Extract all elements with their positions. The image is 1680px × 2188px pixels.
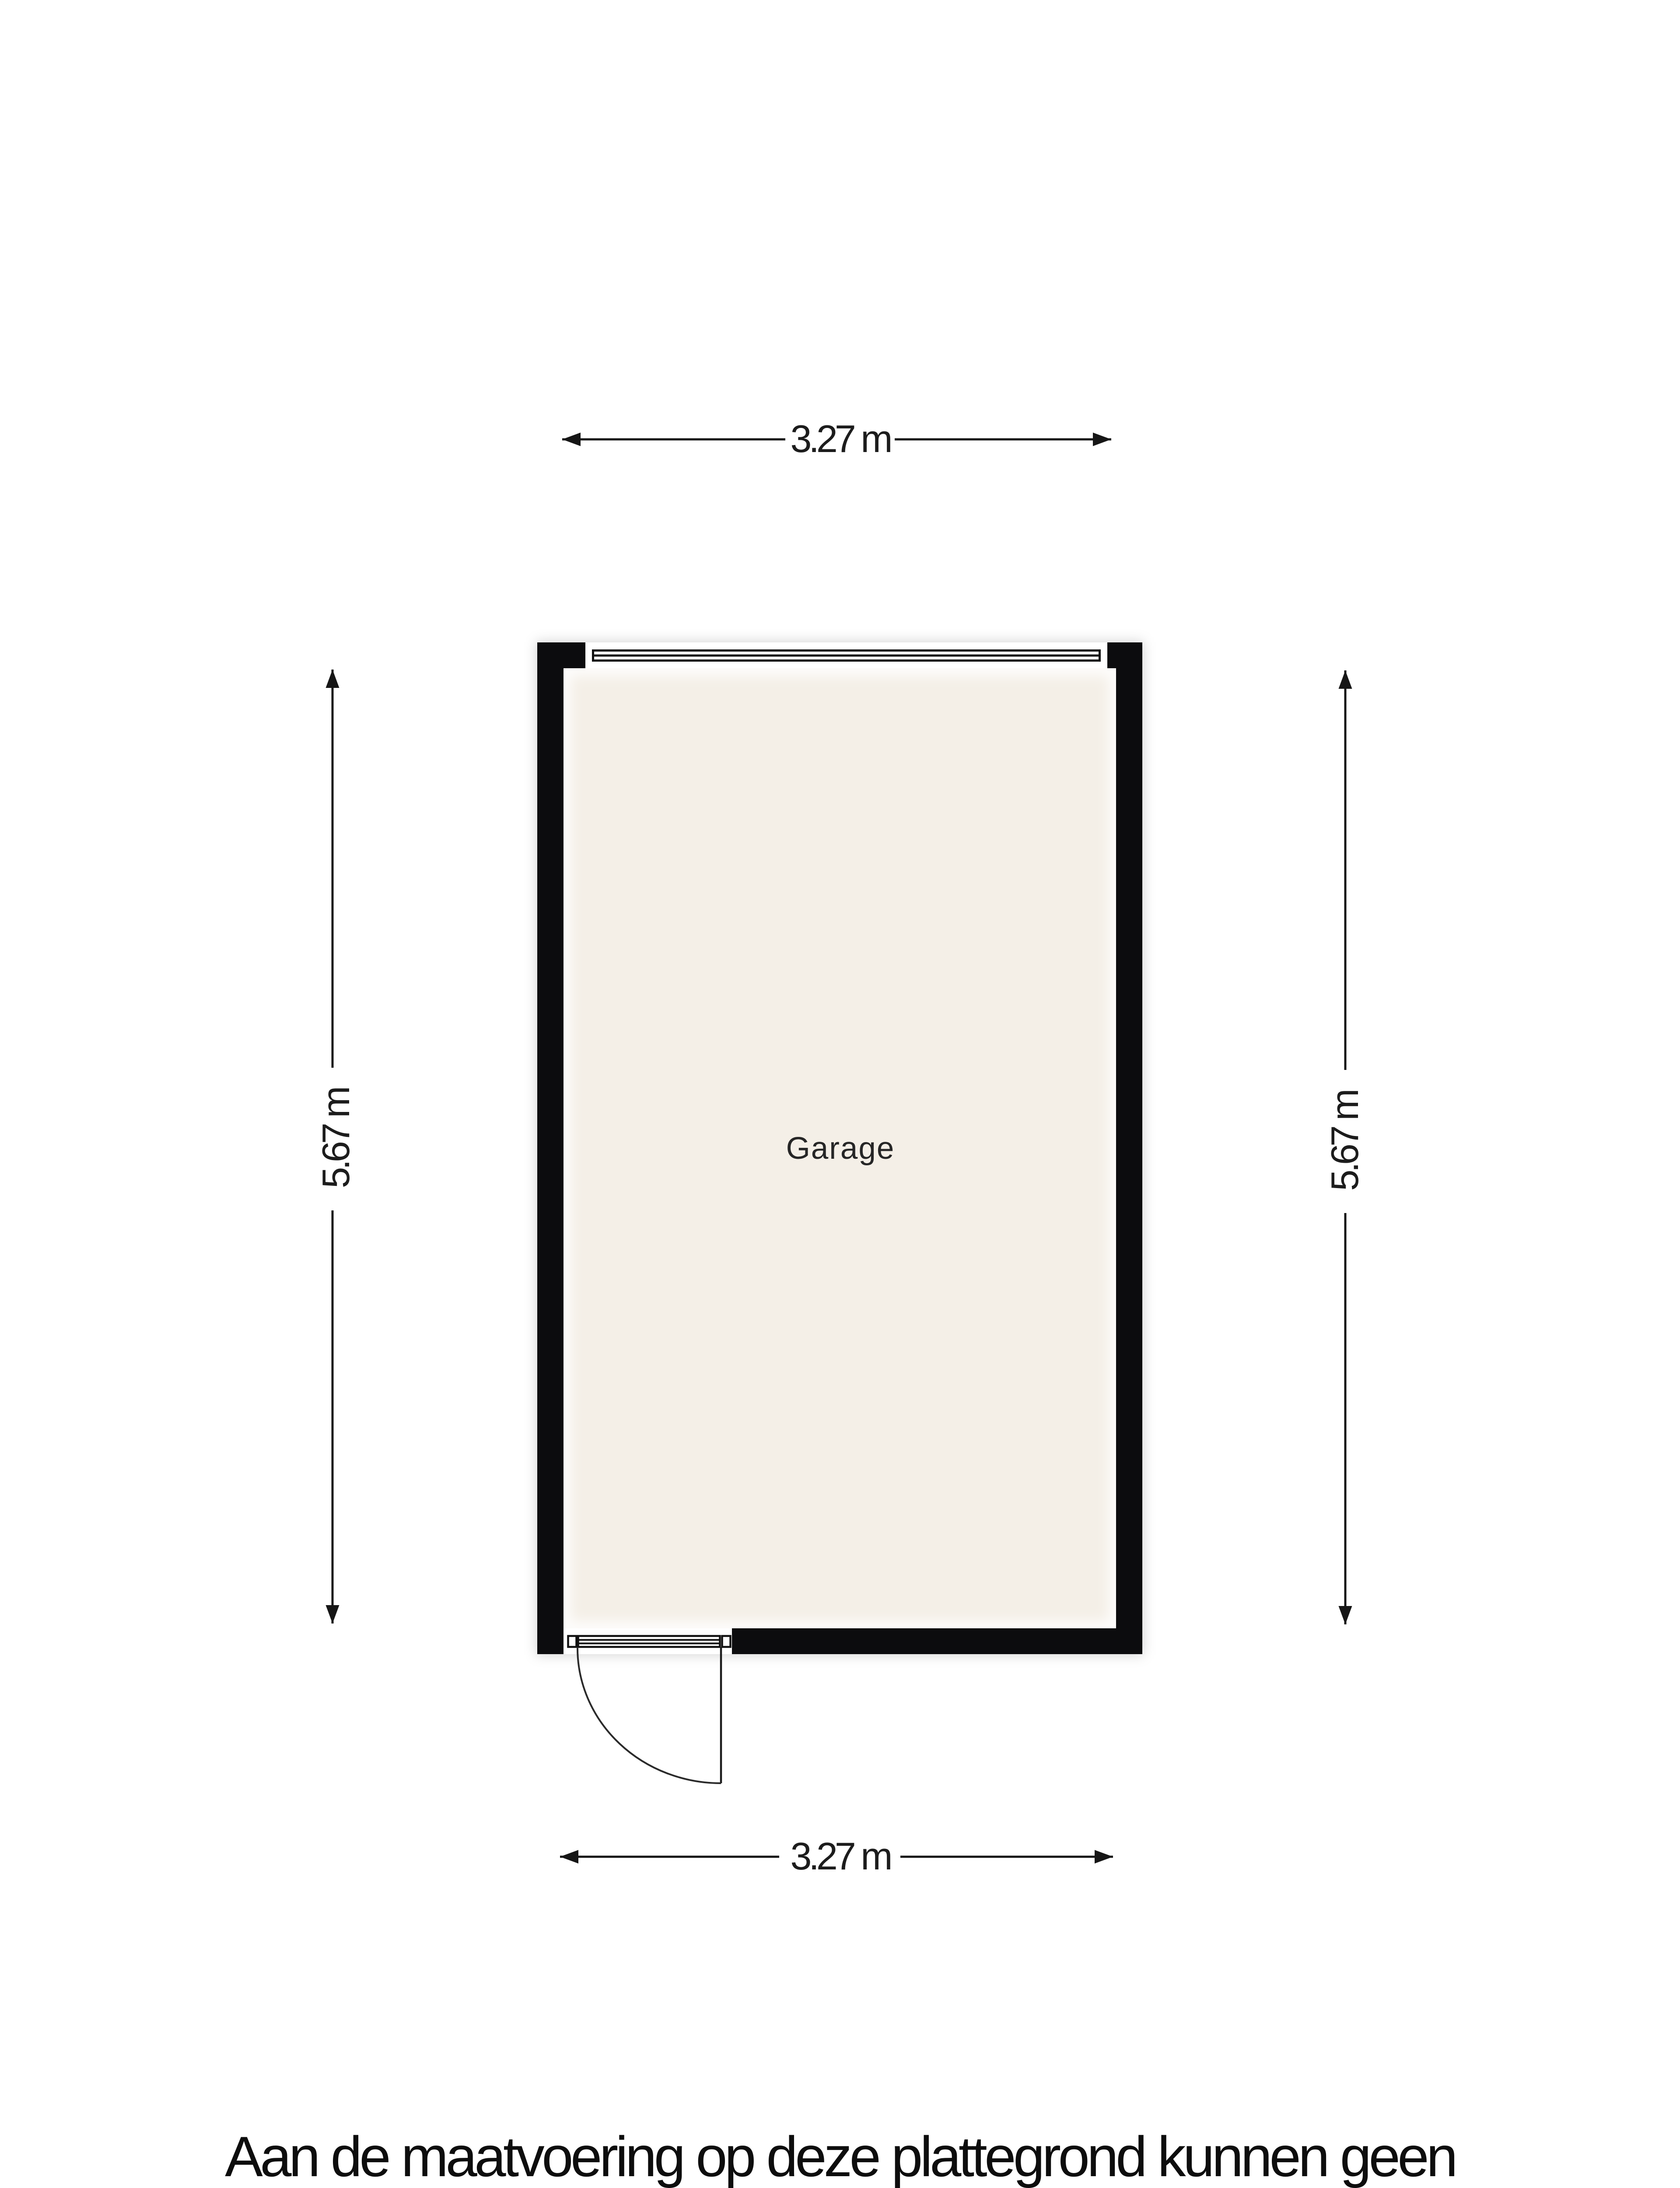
svg-text:Garage: Garage [786, 1131, 895, 1166]
svg-text:rechten worden ontleend.: rechten worden ontleend. [545, 2186, 1134, 2188]
svg-text:Aan de maatvoering op deze pla: Aan de maatvoering op deze plattegrond k… [225, 2125, 1455, 2188]
svg-text:5.67 m: 5.67 m [314, 1088, 357, 1189]
svg-text:3.27 m: 3.27 m [790, 1834, 890, 1878]
svg-text:5.67 m: 5.67 m [1323, 1091, 1366, 1191]
svg-text:3.27 m: 3.27 m [790, 417, 890, 460]
